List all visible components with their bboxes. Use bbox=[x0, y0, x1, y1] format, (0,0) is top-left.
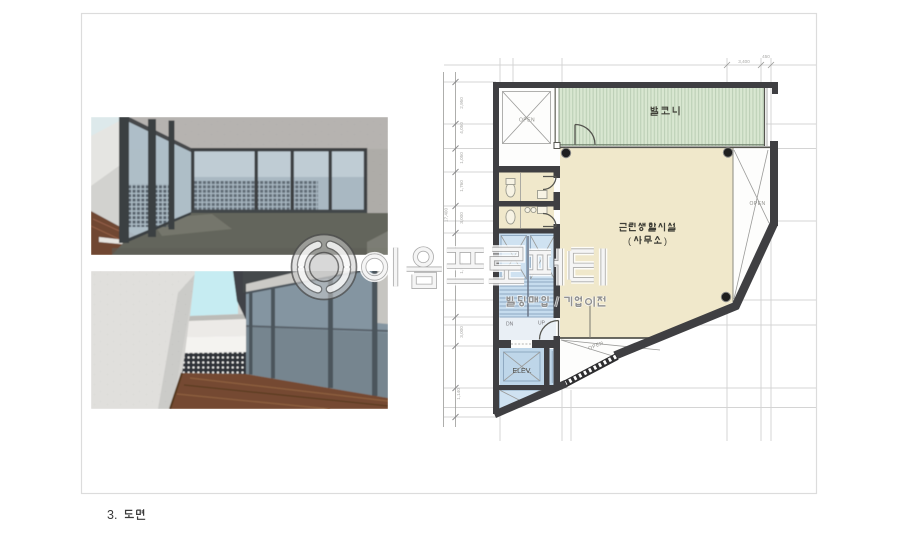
svg-text:1,140: 1,140 bbox=[456, 388, 461, 400]
svg-text:(: ( bbox=[628, 236, 631, 246]
svg-text:3,000: 3,000 bbox=[459, 212, 464, 224]
svg-text:1,050: 1,050 bbox=[459, 152, 464, 164]
svg-text:OPEN: OPEN bbox=[750, 201, 766, 207]
svg-text:ELEV.: ELEV. bbox=[513, 368, 532, 375]
svg-text:OPEN: OPEN bbox=[519, 118, 535, 124]
svg-text:17,400: 17,400 bbox=[444, 208, 449, 222]
svg-text:3.: 3. bbox=[107, 508, 117, 522]
svg-text:4,050: 4,050 bbox=[459, 122, 464, 134]
svg-text:2,950: 2,950 bbox=[459, 97, 464, 109]
svg-text:): ) bbox=[664, 236, 667, 246]
svg-text:450: 450 bbox=[762, 54, 770, 59]
svg-text:1,760: 1,760 bbox=[459, 180, 464, 192]
svg-text:DN: DN bbox=[506, 322, 514, 328]
svg-text:3,400: 3,400 bbox=[738, 59, 750, 64]
svg-text:UP: UP bbox=[538, 321, 546, 327]
svg-text:3,000: 3,000 bbox=[459, 326, 464, 338]
